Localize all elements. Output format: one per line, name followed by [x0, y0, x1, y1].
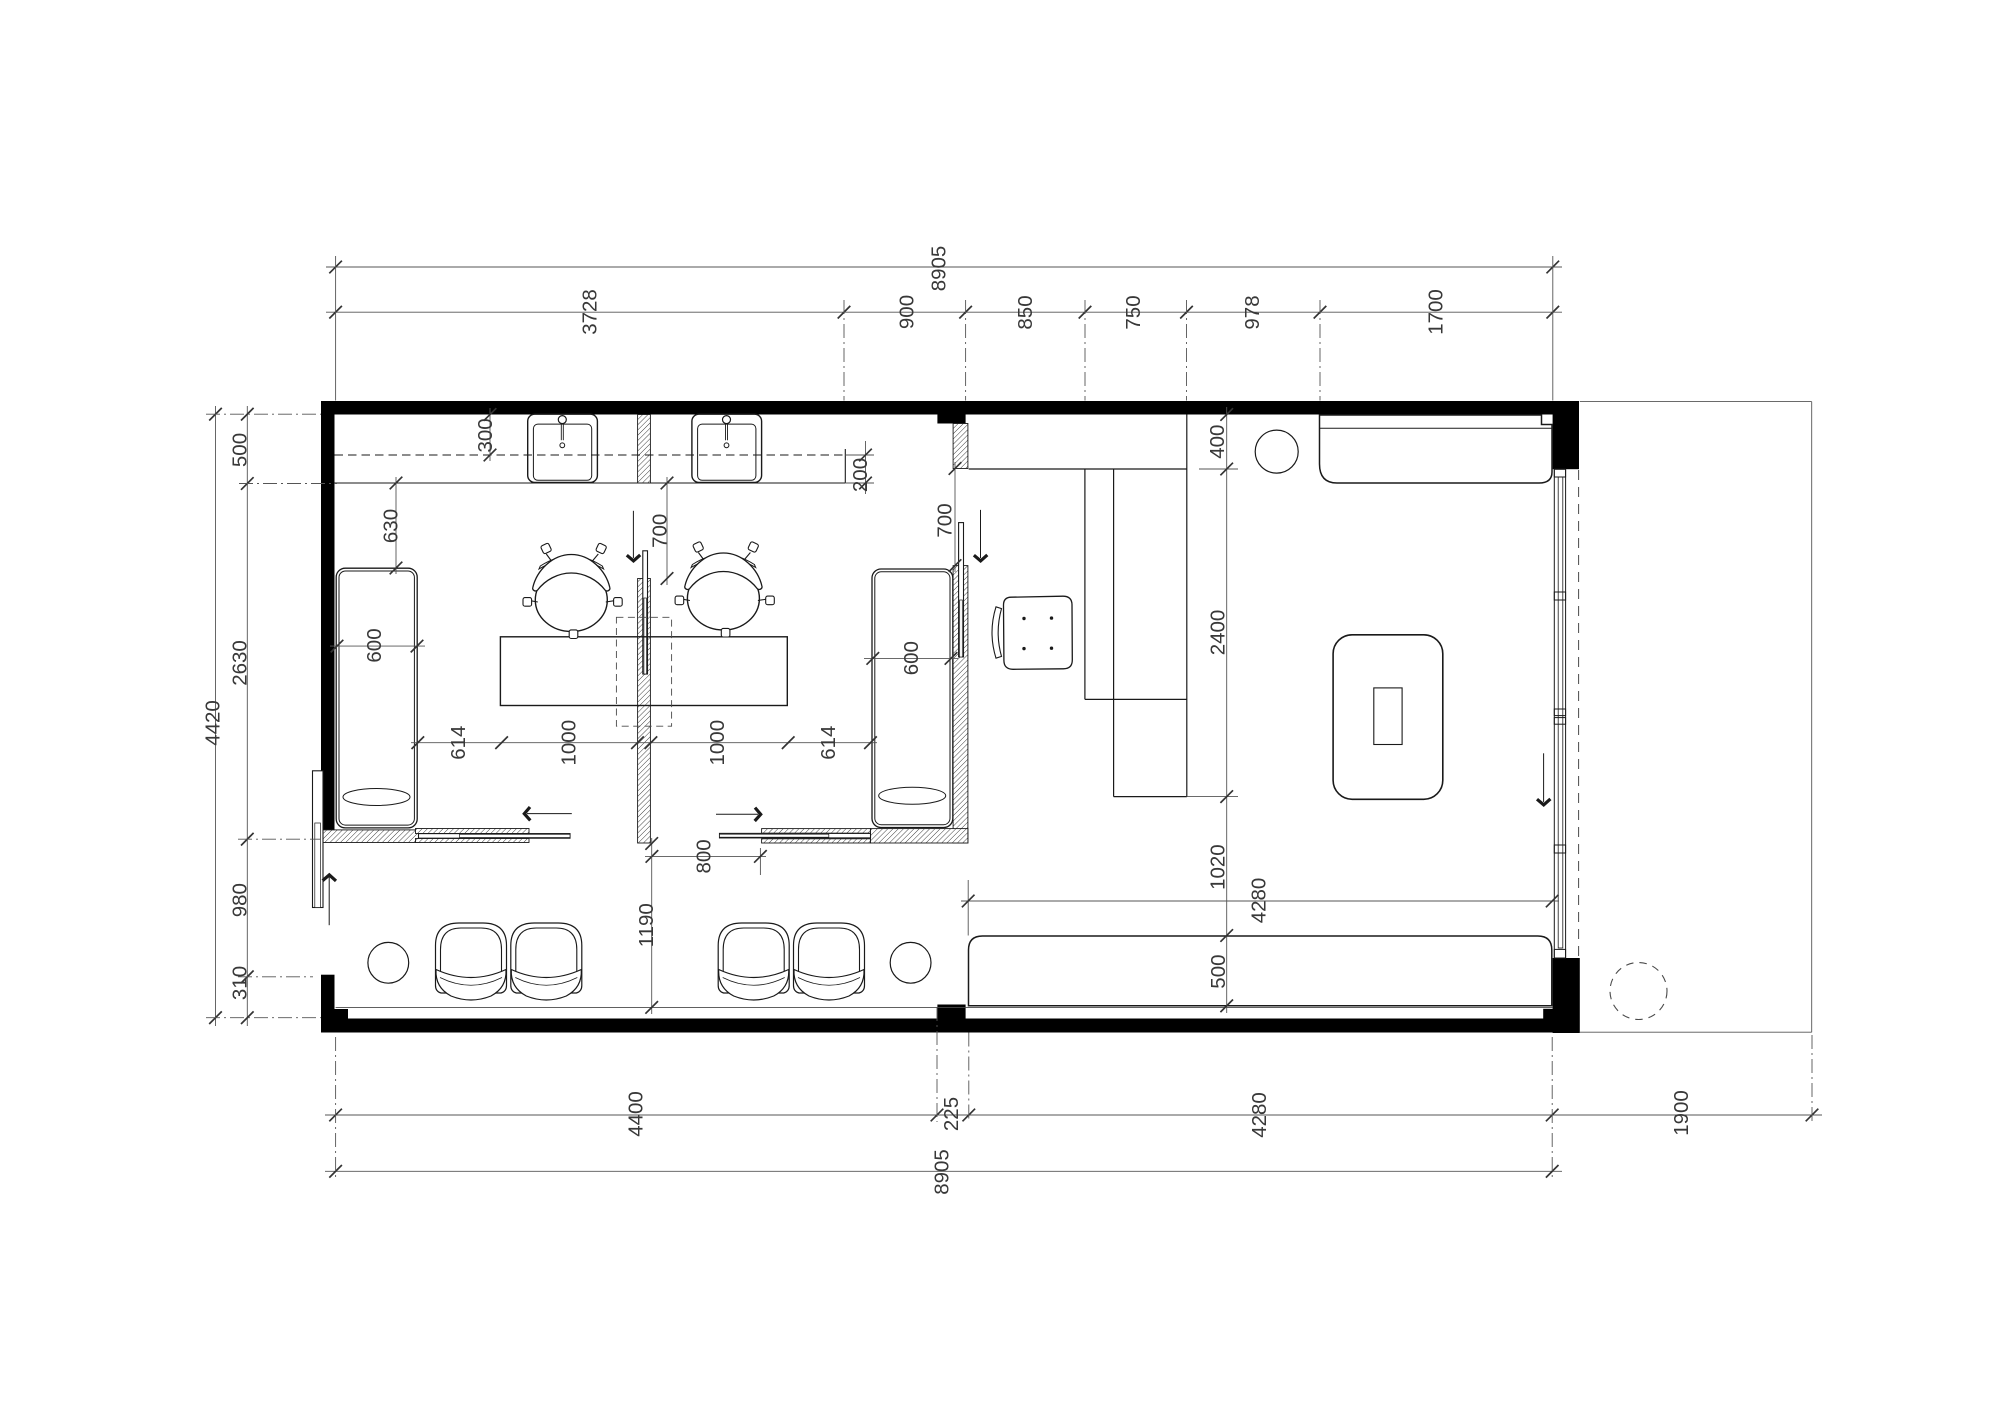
svg-text:4400: 4400 [624, 1091, 647, 1137]
svg-text:500: 500 [1207, 954, 1230, 988]
svg-text:4420: 4420 [201, 700, 224, 746]
svg-text:2400: 2400 [1206, 610, 1229, 656]
svg-text:900: 900 [895, 295, 918, 329]
svg-text:614: 614 [817, 726, 840, 760]
svg-text:8905: 8905 [927, 246, 950, 292]
svg-text:310: 310 [228, 966, 251, 1000]
svg-text:1000: 1000 [706, 720, 729, 766]
svg-text:1190: 1190 [635, 903, 658, 947]
svg-text:300: 300 [474, 418, 497, 452]
svg-text:2630: 2630 [228, 640, 251, 686]
svg-text:8905: 8905 [930, 1149, 953, 1195]
svg-text:500: 500 [228, 433, 251, 467]
svg-text:400: 400 [1206, 425, 1229, 459]
svg-text:1000: 1000 [557, 720, 580, 766]
svg-text:800: 800 [692, 839, 715, 873]
svg-text:978: 978 [1241, 295, 1264, 329]
svg-text:600: 600 [363, 628, 386, 662]
svg-text:630: 630 [379, 509, 402, 543]
svg-text:1700: 1700 [1424, 289, 1447, 335]
svg-text:980: 980 [228, 883, 251, 917]
svg-text:850: 850 [1014, 295, 1037, 329]
svg-text:225: 225 [940, 1097, 963, 1131]
svg-text:3728: 3728 [578, 289, 601, 335]
svg-text:4280: 4280 [1247, 878, 1270, 924]
svg-text:1900: 1900 [1670, 1090, 1693, 1136]
svg-text:4280: 4280 [1248, 1092, 1271, 1138]
svg-text:614: 614 [447, 726, 470, 760]
svg-text:1020: 1020 [1206, 844, 1229, 890]
svg-text:750: 750 [1122, 295, 1145, 329]
svg-text:600: 600 [900, 641, 923, 675]
svg-text:700: 700 [933, 503, 956, 537]
svg-text:200: 200 [849, 458, 872, 492]
svg-text:700: 700 [648, 514, 671, 548]
